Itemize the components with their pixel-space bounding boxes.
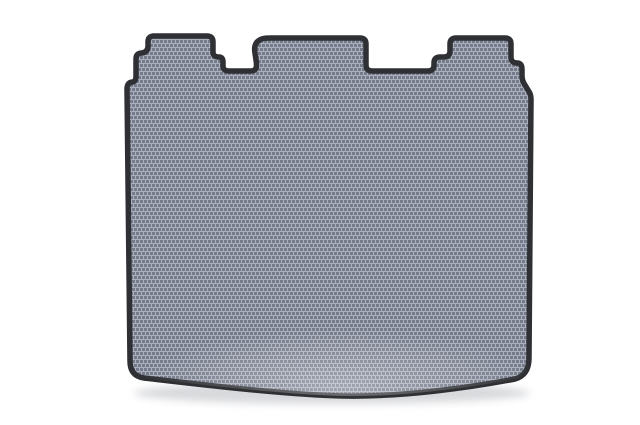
product-image-canvas bbox=[0, 0, 640, 425]
trunk-mat-product-image bbox=[0, 0, 640, 425]
